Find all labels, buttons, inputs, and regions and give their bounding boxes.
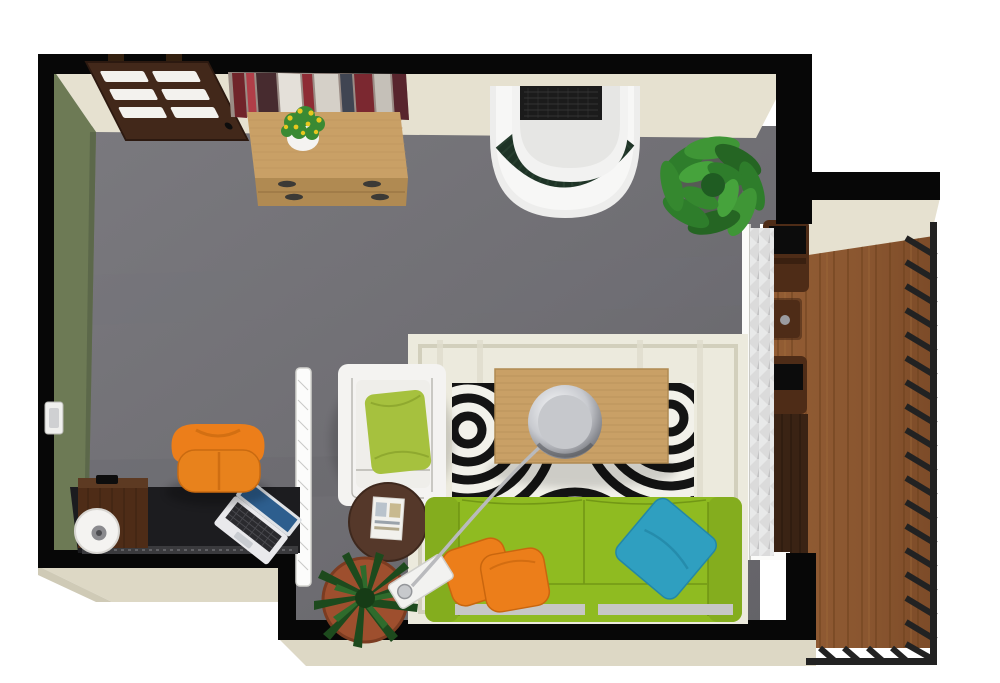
cabinet-slot bbox=[96, 475, 118, 484]
curved-cabinet[interactable] bbox=[490, 86, 640, 218]
curtain[interactable] bbox=[750, 228, 774, 556]
floor-plan-render bbox=[0, 0, 1000, 683]
grille bbox=[520, 86, 602, 120]
sofa[interactable] bbox=[425, 494, 742, 622]
privacy-screen[interactable] bbox=[774, 414, 808, 554]
magazine[interactable] bbox=[371, 497, 405, 540]
floor-plan-canvas bbox=[0, 0, 1000, 683]
sideboard[interactable] bbox=[247, 106, 408, 206]
glass-partition[interactable] bbox=[296, 368, 311, 586]
wall-light[interactable] bbox=[45, 402, 63, 434]
sofa-base-strip bbox=[598, 604, 733, 615]
side-table[interactable] bbox=[349, 483, 427, 561]
office-chair[interactable] bbox=[166, 424, 270, 506]
throw-pillow-green[interactable] bbox=[364, 389, 432, 475]
background bbox=[0, 0, 1000, 54]
desk-accessory[interactable] bbox=[75, 509, 119, 553]
